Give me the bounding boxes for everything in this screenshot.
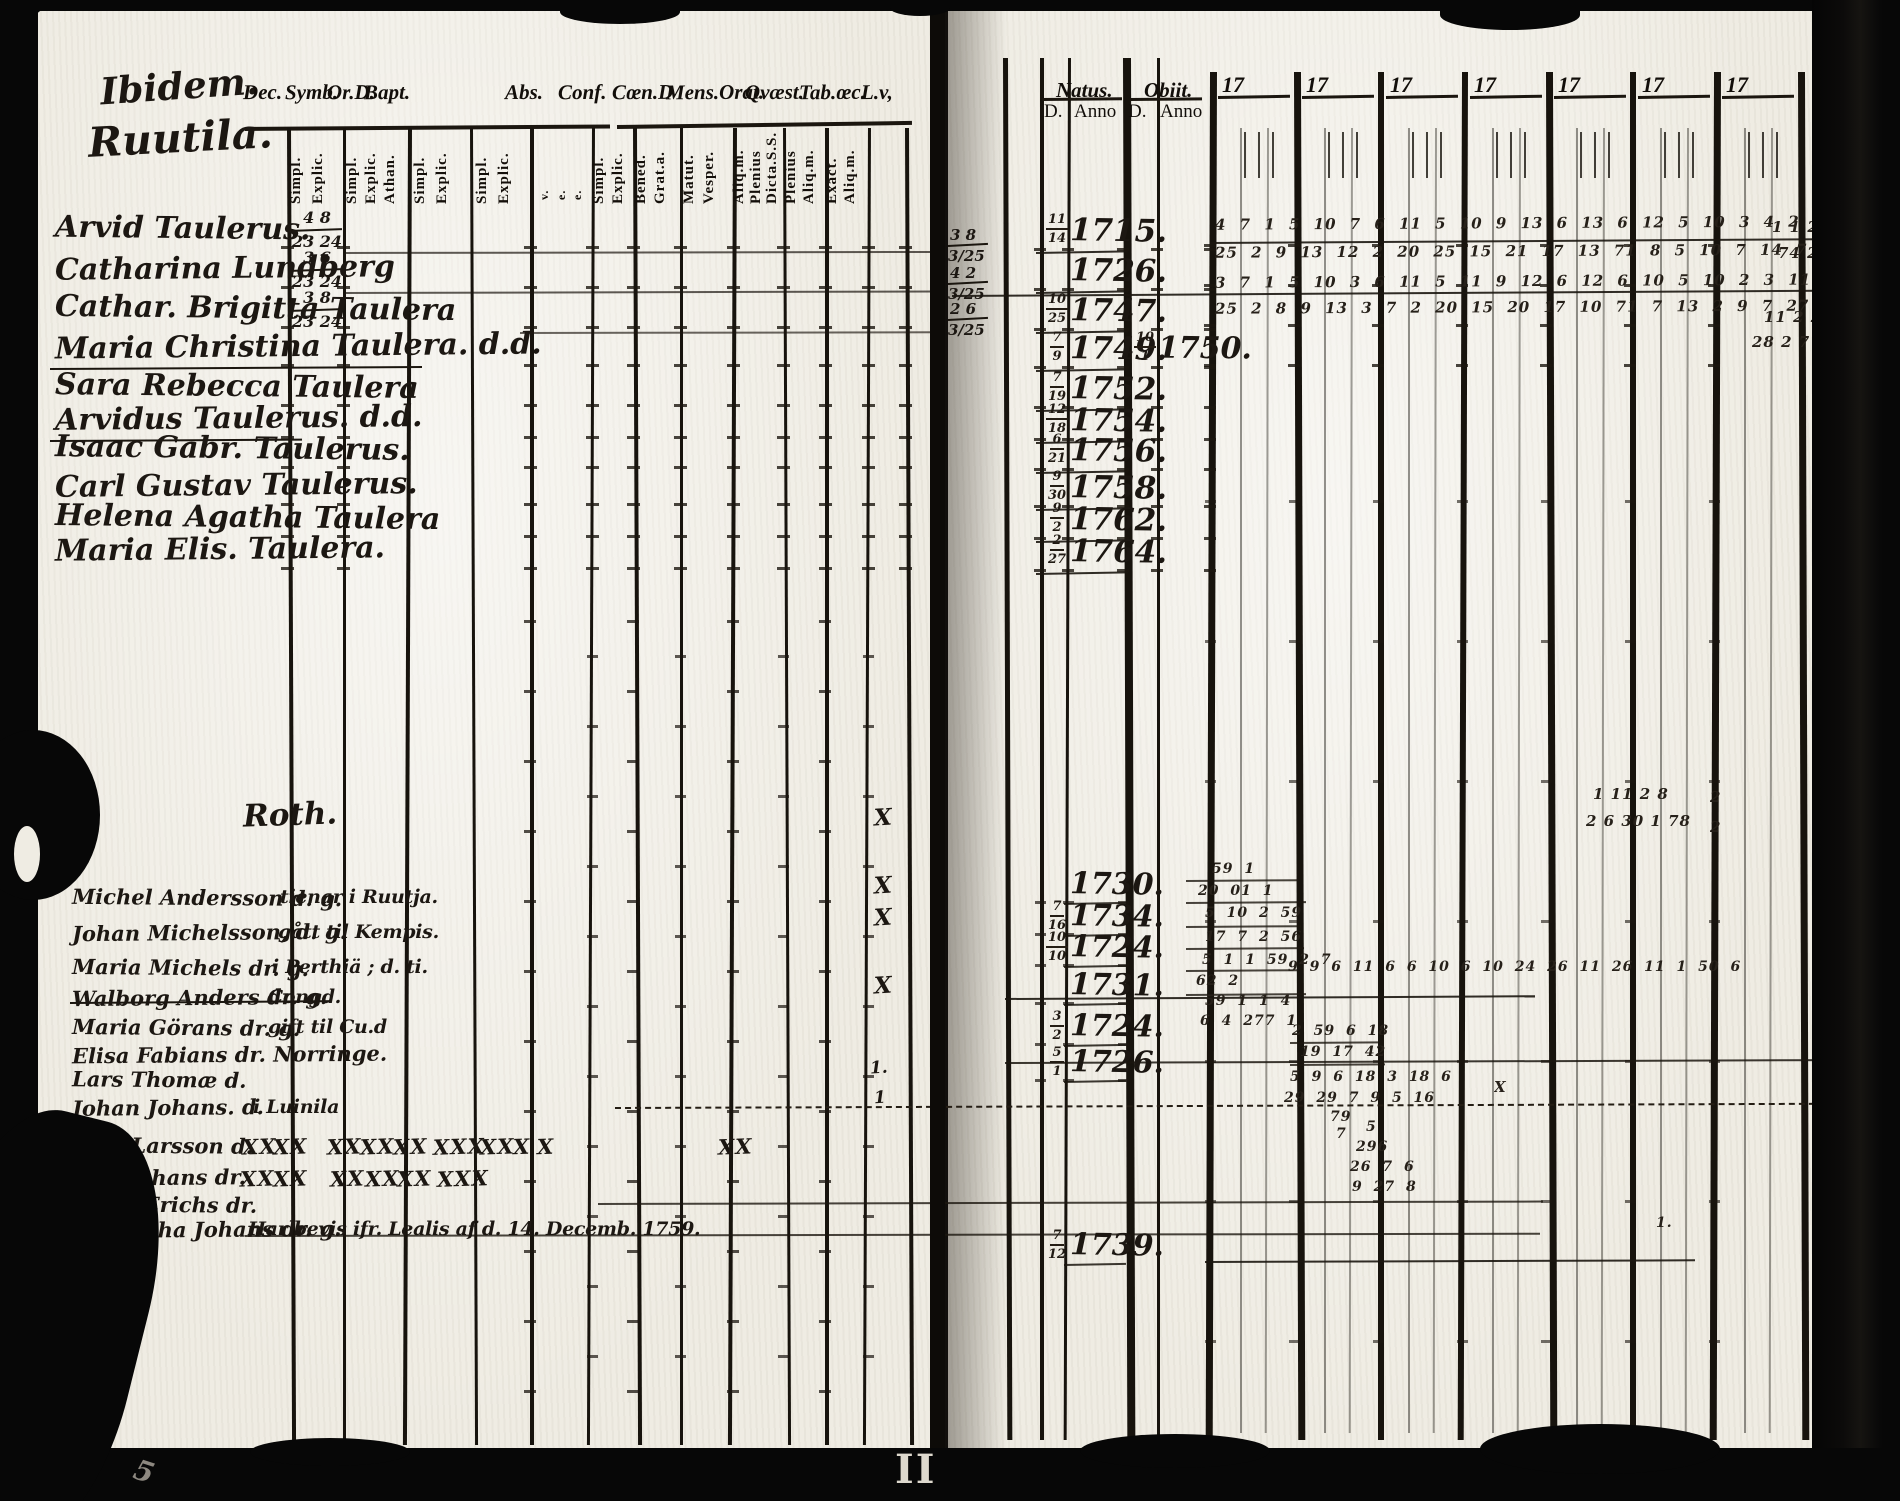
- roth-scrawl: 5 10 2 59: [1205, 906, 1302, 920]
- horizontal-rule: [627, 900, 639, 903]
- horizontal-rule: [627, 326, 640, 329]
- horizontal-rule: [627, 1110, 639, 1113]
- column-header: Dec.: [243, 82, 282, 103]
- horizontal-rule: [627, 1180, 639, 1183]
- roth-entry-note: i Luinila: [253, 1098, 339, 1117]
- horizontal-rule: [778, 1145, 789, 1148]
- fraction-top: 9: [1050, 501, 1063, 519]
- roth-scrawl: 59 1 1 4: [1205, 994, 1291, 1008]
- horizontal-rule: [727, 1250, 739, 1253]
- horizontal-rule: [337, 567, 350, 570]
- horizontal-rule: [727, 535, 740, 538]
- tally-marks: XX: [365, 1167, 400, 1189]
- horizontal-rule: [1373, 640, 1384, 643]
- horizontal-rule: [524, 690, 536, 693]
- year-column-header: 17: [1474, 74, 1496, 96]
- horizontal-rule: [1625, 1340, 1636, 1343]
- place-heading-line1: Ibidem.: [99, 63, 260, 111]
- tally-marks: XXX: [433, 1135, 486, 1158]
- column-subheader: Athan.: [382, 132, 399, 204]
- horizontal-rule: [819, 436, 832, 439]
- grade-top: 3 6: [292, 250, 342, 266]
- column-subheader: Exact.: [824, 132, 841, 204]
- horizontal-rule: [778, 725, 789, 728]
- horizontal-rule: [524, 900, 536, 903]
- scan-border-top: [0, 0, 1900, 11]
- household-name: Isaac Gabr. Taulerus.: [55, 432, 410, 466]
- horizontal-rule: [819, 567, 832, 570]
- horizontal-rule: [727, 1390, 739, 1393]
- horizontal-rule: [778, 935, 789, 938]
- horizontal-rule: [819, 503, 832, 506]
- horizontal-rule: [778, 1285, 789, 1288]
- horizontal-rule: [1372, 364, 1384, 367]
- horizontal-rule: [727, 900, 739, 903]
- horizontal-rule: [1205, 500, 1216, 503]
- horizontal-rule: [586, 436, 599, 439]
- vertical-rule: [1660, 128, 1662, 1433]
- column-subheader: Plenius: [783, 132, 800, 204]
- horizontal-rule: [587, 795, 598, 798]
- roth-scrawl: 26 7 6: [1350, 1160, 1415, 1174]
- roth-natus-year: 1724.: [1070, 932, 1164, 964]
- tally-marks: XX: [273, 1167, 308, 1189]
- horizontal-rule: [862, 286, 875, 289]
- fraction-top: 11: [1046, 212, 1068, 230]
- roth-scrawl: 2 59 6 18: [1292, 1024, 1389, 1038]
- roth-scrawl: 5: [1366, 1120, 1377, 1134]
- stray-mark: X: [1494, 1080, 1507, 1095]
- ink-blob: [250, 1438, 410, 1466]
- horizontal-rule: [674, 404, 687, 407]
- horizontal-rule: [524, 246, 537, 249]
- natus-year: 1764.: [1070, 536, 1168, 569]
- horizontal-rule: [1373, 1340, 1384, 1343]
- horizontal-rule: [586, 503, 599, 506]
- obiit-header: Obiit.: [1144, 80, 1192, 101]
- stray-mark: 2 6 30 1 78: [1586, 814, 1691, 829]
- roth-scrawl: 9 27 8: [1352, 1180, 1417, 1194]
- horizontal-rule: [727, 690, 739, 693]
- horizontal-rule: [862, 503, 875, 506]
- scan-border-right: [1812, 0, 1900, 1501]
- tally-marks: XX: [397, 1167, 432, 1189]
- horizontal-rule: [587, 865, 598, 868]
- horizontal-rule: [1204, 406, 1216, 409]
- horizontal-rule: [1035, 964, 1046, 967]
- column-subheader: Grat.a.: [652, 132, 669, 204]
- horizontal-rule: [819, 760, 831, 763]
- horizontal-rule: [819, 326, 832, 329]
- grade-top: 4 8: [292, 210, 342, 226]
- horizontal-rule: [778, 795, 789, 798]
- fraction-top: 10: [1046, 292, 1068, 310]
- horizontal-rule: [1541, 920, 1552, 923]
- vertical-rule: [1272, 132, 1274, 178]
- tally-marks: XX: [242, 1135, 277, 1157]
- fraction-top: 7: [1050, 1228, 1063, 1246]
- horizontal-rule: [1289, 500, 1300, 503]
- horizontal-rule: [1540, 324, 1552, 327]
- horizontal-rule: [586, 535, 599, 538]
- roth-scrawl: 296: [1356, 1140, 1388, 1154]
- horizontal-rule: [1205, 920, 1216, 923]
- natus-year: 1752.: [1070, 373, 1168, 406]
- column-subheader: Aliq.m.: [801, 132, 818, 204]
- horizontal-rule: [1708, 324, 1720, 327]
- horizontal-rule: [586, 246, 599, 249]
- tally-marks: XX: [360, 1135, 395, 1157]
- vertical-rule: [1412, 132, 1414, 178]
- horizontal-rule: [727, 404, 740, 407]
- horizontal-rule: [524, 286, 537, 289]
- roth-scrawl: 17 7 2 56: [1205, 930, 1302, 944]
- tally-marks: X: [537, 1136, 555, 1158]
- horizontal-rule: [727, 620, 739, 623]
- roth-scrawl: 7: [1336, 1127, 1347, 1141]
- horizontal-rule: [727, 246, 740, 249]
- horizontal-rule: [524, 364, 537, 367]
- horizontal-rule: [675, 1285, 686, 1288]
- vertical-rule: [1748, 132, 1750, 178]
- horizontal-rule: [777, 567, 790, 570]
- year-column-header: 17: [1222, 74, 1244, 96]
- vertical-rule: [1510, 132, 1512, 178]
- vertical-rule: [1762, 132, 1764, 178]
- horizontal-rule: [674, 364, 687, 367]
- horizontal-rule: [524, 1250, 536, 1253]
- vertical-rule: [1440, 132, 1442, 178]
- column-header: L.v,: [861, 82, 893, 103]
- tally-marks: XX: [330, 1167, 365, 1189]
- horizontal-rule: [727, 760, 739, 763]
- horizontal-rule: [1456, 324, 1468, 327]
- horizontal-rule: [1288, 324, 1300, 327]
- margin-x-mark: 1: [874, 1090, 887, 1108]
- roth-scrawl: 62 2: [1196, 974, 1239, 988]
- household-name: Cathar. Brigitta Taulera: [55, 292, 457, 326]
- horizontal-rule: [627, 1040, 639, 1043]
- column-subheader: Simpl.: [344, 132, 361, 204]
- horizontal-rule: [1034, 366, 1046, 369]
- horizontal-rule: [1034, 288, 1046, 291]
- horizontal-rule: [862, 364, 875, 367]
- horizontal-rule: [524, 567, 537, 570]
- gutter-fraction-bottom: 3/25: [948, 323, 985, 338]
- column-subheader: Explic.: [363, 132, 380, 204]
- horizontal-rule: [819, 900, 831, 903]
- obiit-day-fraction: 101: [1128, 330, 1162, 364]
- horizontal-rule: [627, 286, 640, 289]
- horizontal-rule: [675, 725, 686, 728]
- horizontal-rule: [1204, 468, 1216, 471]
- vertical-rule: [1692, 132, 1694, 178]
- roth-natus-year: 1730.: [1070, 869, 1164, 901]
- roth-natus-year: 1739.: [1070, 1230, 1164, 1262]
- tally-marks: XX: [327, 1135, 362, 1157]
- horizontal-rule: [1625, 920, 1636, 923]
- column-header: Conf.: [558, 82, 607, 103]
- horizontal-rule: [627, 690, 639, 693]
- horizontal-rule: [1373, 920, 1384, 923]
- horizontal-rule: [899, 364, 912, 367]
- ink-blob: [1080, 1434, 1270, 1468]
- vertical-rule: [1678, 132, 1680, 178]
- horizontal-rule: [674, 326, 687, 329]
- horizontal-rule: [819, 246, 832, 249]
- horizontal-rule: [819, 404, 832, 407]
- grade-top: 3 8: [292, 290, 342, 306]
- horizontal-rule: [587, 1075, 598, 1078]
- horizontal-rule: [524, 830, 536, 833]
- paper-notch: [14, 826, 40, 882]
- fraction-top: 7: [1050, 899, 1063, 917]
- horizontal-rule: [899, 503, 912, 506]
- horizontal-rule: [524, 466, 537, 469]
- fraction-top: 2: [1050, 533, 1063, 551]
- place-heading-line2: Ruutila.: [87, 113, 274, 164]
- roth-scrawl: 9 9 6 11 6 6 10 6 10 24 26 11 26 11 1 50…: [1288, 960, 1741, 974]
- gutter-fraction-top: 2 6: [950, 302, 976, 317]
- horizontal-rule: [1624, 324, 1636, 327]
- tally-marks: XX: [393, 1135, 428, 1157]
- horizontal-rule: [819, 1250, 831, 1253]
- horizontal-rule: [1457, 920, 1468, 923]
- horizontal-rule: [674, 567, 687, 570]
- column-subheader: Plenius: [748, 132, 765, 204]
- horizontal-rule: [1205, 1340, 1216, 1343]
- column-subheader: Simpl.: [474, 132, 491, 204]
- column-subheader: Explic.: [610, 132, 627, 204]
- ink-blob: [890, 0, 950, 16]
- horizontal-rule: [675, 865, 686, 868]
- horizontal-rule: [727, 1040, 739, 1043]
- column-subheader: Dicta.S.S.: [764, 132, 781, 204]
- horizontal-rule: [627, 567, 640, 570]
- horizontal-rule: [899, 436, 912, 439]
- horizontal-rule: [586, 364, 599, 367]
- horizontal-rule: [727, 1180, 739, 1183]
- column-subheader: Matut.: [681, 132, 698, 204]
- household-name: Arvid Taulerus.: [55, 213, 311, 246]
- horizontal-rule: [819, 830, 831, 833]
- horizontal-rule: [524, 1320, 536, 1323]
- horizontal-rule: [863, 1285, 874, 1288]
- horizontal-rule: [1034, 569, 1046, 572]
- horizontal-rule: [899, 567, 912, 570]
- horizontal-rule: [675, 1355, 686, 1358]
- horizontal-rule: [587, 1285, 598, 1288]
- horizontal-rule: [1625, 500, 1636, 503]
- ink-blob: [1440, 0, 1580, 30]
- roth-entry-note: Congd.: [268, 988, 341, 1007]
- year-column-header: 17: [1390, 74, 1412, 96]
- horizontal-rule: [727, 567, 740, 570]
- column-subheader: Aliq.m.: [731, 132, 748, 204]
- vertical-rule: [1240, 128, 1242, 1433]
- roth-scrawl: 6 4 277 1: [1200, 1014, 1297, 1028]
- margin-x-mark: X: [873, 874, 892, 898]
- horizontal-rule: [1035, 1002, 1046, 1005]
- horizontal-rule: [899, 286, 912, 289]
- section-heading-roth: Roth.: [242, 798, 337, 832]
- vertical-rule: [1328, 132, 1330, 178]
- horizontal-rule: [586, 286, 599, 289]
- roth-scrawl: 59 1: [1212, 862, 1255, 876]
- roth-scrawl: 1.: [1656, 1216, 1673, 1230]
- horizontal-rule: [1204, 537, 1216, 540]
- horizontal-rule: [1289, 780, 1300, 783]
- year-column-header: 17: [1726, 74, 1748, 96]
- horizontal-rule: [675, 795, 686, 798]
- column-header: Abs.: [505, 82, 543, 103]
- horizontal-rule: [777, 436, 790, 439]
- day-anno-header: Anno: [1160, 102, 1202, 121]
- horizontal-rule: [862, 436, 875, 439]
- horizontal-rule: [1372, 324, 1384, 327]
- fraction-top: 12: [1046, 402, 1068, 420]
- horizontal-rule: [1709, 500, 1720, 503]
- horizontal-rule: [627, 404, 640, 407]
- horizontal-rule: [863, 935, 874, 938]
- vertical-rule: [1580, 132, 1582, 178]
- natus-year: 1758.: [1070, 472, 1168, 505]
- horizontal-rule: [1709, 640, 1720, 643]
- household-name: Maria Christina Taulera. d.d.: [55, 329, 542, 364]
- horizontal-rule: [1204, 324, 1216, 327]
- natus-year: 1747.: [1070, 295, 1168, 328]
- horizontal-rule: [1034, 248, 1046, 251]
- horizontal-rule: [1204, 366, 1216, 369]
- column-header: Cœn.D: [612, 82, 673, 104]
- horizontal-rule: [899, 466, 912, 469]
- margin-x-mark: X: [873, 806, 892, 830]
- roth-natus-year: 1724.: [1070, 1011, 1164, 1043]
- horizontal-rule: [1204, 569, 1216, 572]
- horizontal-rule: [727, 830, 739, 833]
- horizontal-rule: [862, 466, 875, 469]
- horizontal-rule: [1289, 640, 1300, 643]
- vertical-rule: [1356, 132, 1358, 178]
- column-subheader: e.: [554, 160, 569, 200]
- stray-mark: 2: [1710, 790, 1721, 805]
- horizontal-rule: [863, 725, 874, 728]
- horizontal-rule: [1373, 780, 1384, 783]
- horizontal-rule: [587, 1145, 598, 1148]
- column-subheader: Simpl.: [288, 132, 305, 204]
- horizontal-rule: [1373, 500, 1384, 503]
- horizontal-rule: [727, 286, 740, 289]
- horizontal-rule: [627, 760, 639, 763]
- horizontal-rule: [1625, 640, 1636, 643]
- vertical-rule: [1608, 132, 1610, 178]
- horizontal-rule: [899, 535, 912, 538]
- horizontal-rule: [863, 1145, 874, 1148]
- gutter-shadow: [945, 0, 1007, 1460]
- day-anno-header: Anno: [1074, 102, 1116, 121]
- horizontal-rule: [1457, 500, 1468, 503]
- horizontal-rule: [777, 466, 790, 469]
- fraction-top: 3: [1050, 1009, 1063, 1027]
- margin-x-mark: 1.: [870, 1060, 889, 1078]
- horizontal-rule: [674, 503, 687, 506]
- horizontal-rule: [1288, 364, 1300, 367]
- horizontal-rule: [727, 1320, 739, 1323]
- horizontal-rule: [627, 620, 639, 623]
- vertical-rule: [1342, 132, 1344, 178]
- horizontal-rule: [862, 326, 875, 329]
- fraction-top: 9: [1050, 469, 1063, 487]
- tally-marks: XXX: [437, 1167, 490, 1190]
- column-subheader: Explic.: [434, 132, 451, 204]
- horizontal-rule: [727, 326, 740, 329]
- horizontal-rule: [587, 1355, 598, 1358]
- column-header: Qvæst.: [745, 82, 804, 104]
- vertical-rule: [1594, 132, 1596, 178]
- horizontal-rule: [586, 567, 599, 570]
- horizontal-rule: [675, 935, 686, 938]
- horizontal-rule: [627, 1250, 639, 1253]
- horizontal-rule: [819, 364, 832, 367]
- page-number-mark: II: [895, 1452, 935, 1492]
- natus-year: 1756.: [1070, 435, 1168, 468]
- horizontal-rule: [778, 655, 789, 658]
- scanned-register-spread: Ibidem. Ruutila. Roth. Natus. Obiit. II …: [0, 0, 1900, 1501]
- horizontal-rule: [819, 690, 831, 693]
- horizontal-rule: [675, 1075, 686, 1078]
- horizontal-rule: [524, 404, 537, 407]
- horizontal-rule: [777, 404, 790, 407]
- horizontal-rule: [1457, 640, 1468, 643]
- vertical-rule: [1664, 132, 1666, 178]
- horizontal-rule: [899, 326, 912, 329]
- horizontal-rule: [1456, 364, 1468, 367]
- horizontal-rule: [819, 1320, 831, 1323]
- horizontal-rule: [819, 1110, 831, 1113]
- year-column-header: 17: [1642, 74, 1664, 96]
- column-subheader: v.: [537, 160, 552, 200]
- horizontal-rule: [819, 466, 832, 469]
- vertical-rule: [1426, 132, 1428, 178]
- horizontal-rule: [586, 466, 599, 469]
- vertical-rule: [1776, 132, 1778, 178]
- roth-entry-note: tienar i Ruutja.: [280, 888, 438, 907]
- horizontal-rule: [777, 326, 790, 329]
- natus-year: 1762.: [1070, 504, 1168, 537]
- ink-blob: [560, 0, 680, 24]
- natus-year: 1726.: [1070, 255, 1168, 288]
- horizontal-rule: [524, 436, 537, 439]
- horizontal-rule: [627, 1390, 639, 1393]
- horizontal-rule: [1541, 780, 1552, 783]
- vertical-rule: [1524, 132, 1526, 178]
- roth-entry-name: Johan Johans. d.: [72, 1096, 264, 1119]
- vertical-rule: [1576, 128, 1578, 1433]
- horizontal-rule: [727, 466, 740, 469]
- horizontal-rule: [727, 364, 740, 367]
- column-subheader: e.: [570, 160, 585, 200]
- horizontal-rule: [627, 466, 640, 469]
- horizontal-rule: [587, 935, 598, 938]
- horizontal-rule: [1204, 438, 1216, 441]
- gutter-fraction-top: 4 2: [950, 266, 976, 281]
- roth-scrawl: 29 29 7 9 5 16: [1284, 1091, 1435, 1105]
- horizontal-rule: [778, 1355, 789, 1358]
- roth-natus-year: 1734.: [1070, 901, 1164, 933]
- horizontal-rule: [819, 1390, 831, 1393]
- natus-year: 1715.: [1070, 215, 1168, 248]
- column-subheader: Bened.: [633, 132, 650, 204]
